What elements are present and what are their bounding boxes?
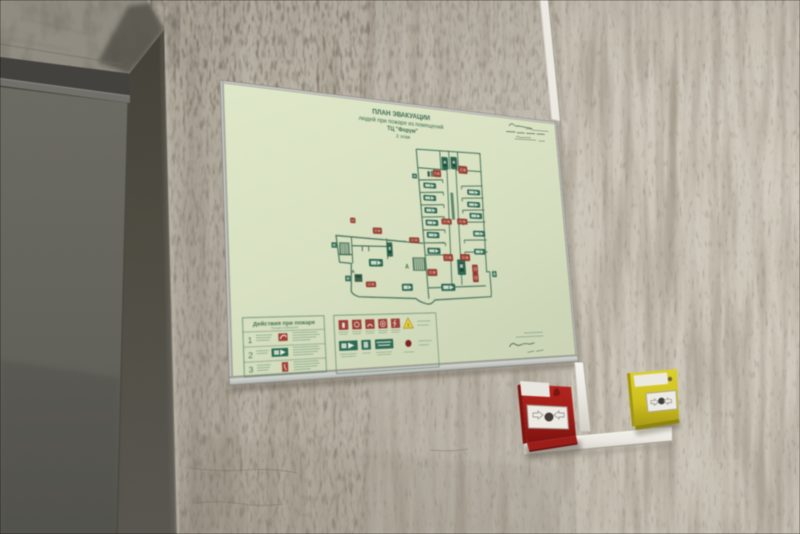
svg-text:A: A <box>405 264 409 270</box>
svg-text:!: ! <box>407 323 409 328</box>
svg-text:3: 3 <box>249 364 254 374</box>
svg-text:A: A <box>351 269 355 274</box>
svg-text:2: 2 <box>248 350 253 360</box>
svg-text:1: 1 <box>248 335 253 345</box>
